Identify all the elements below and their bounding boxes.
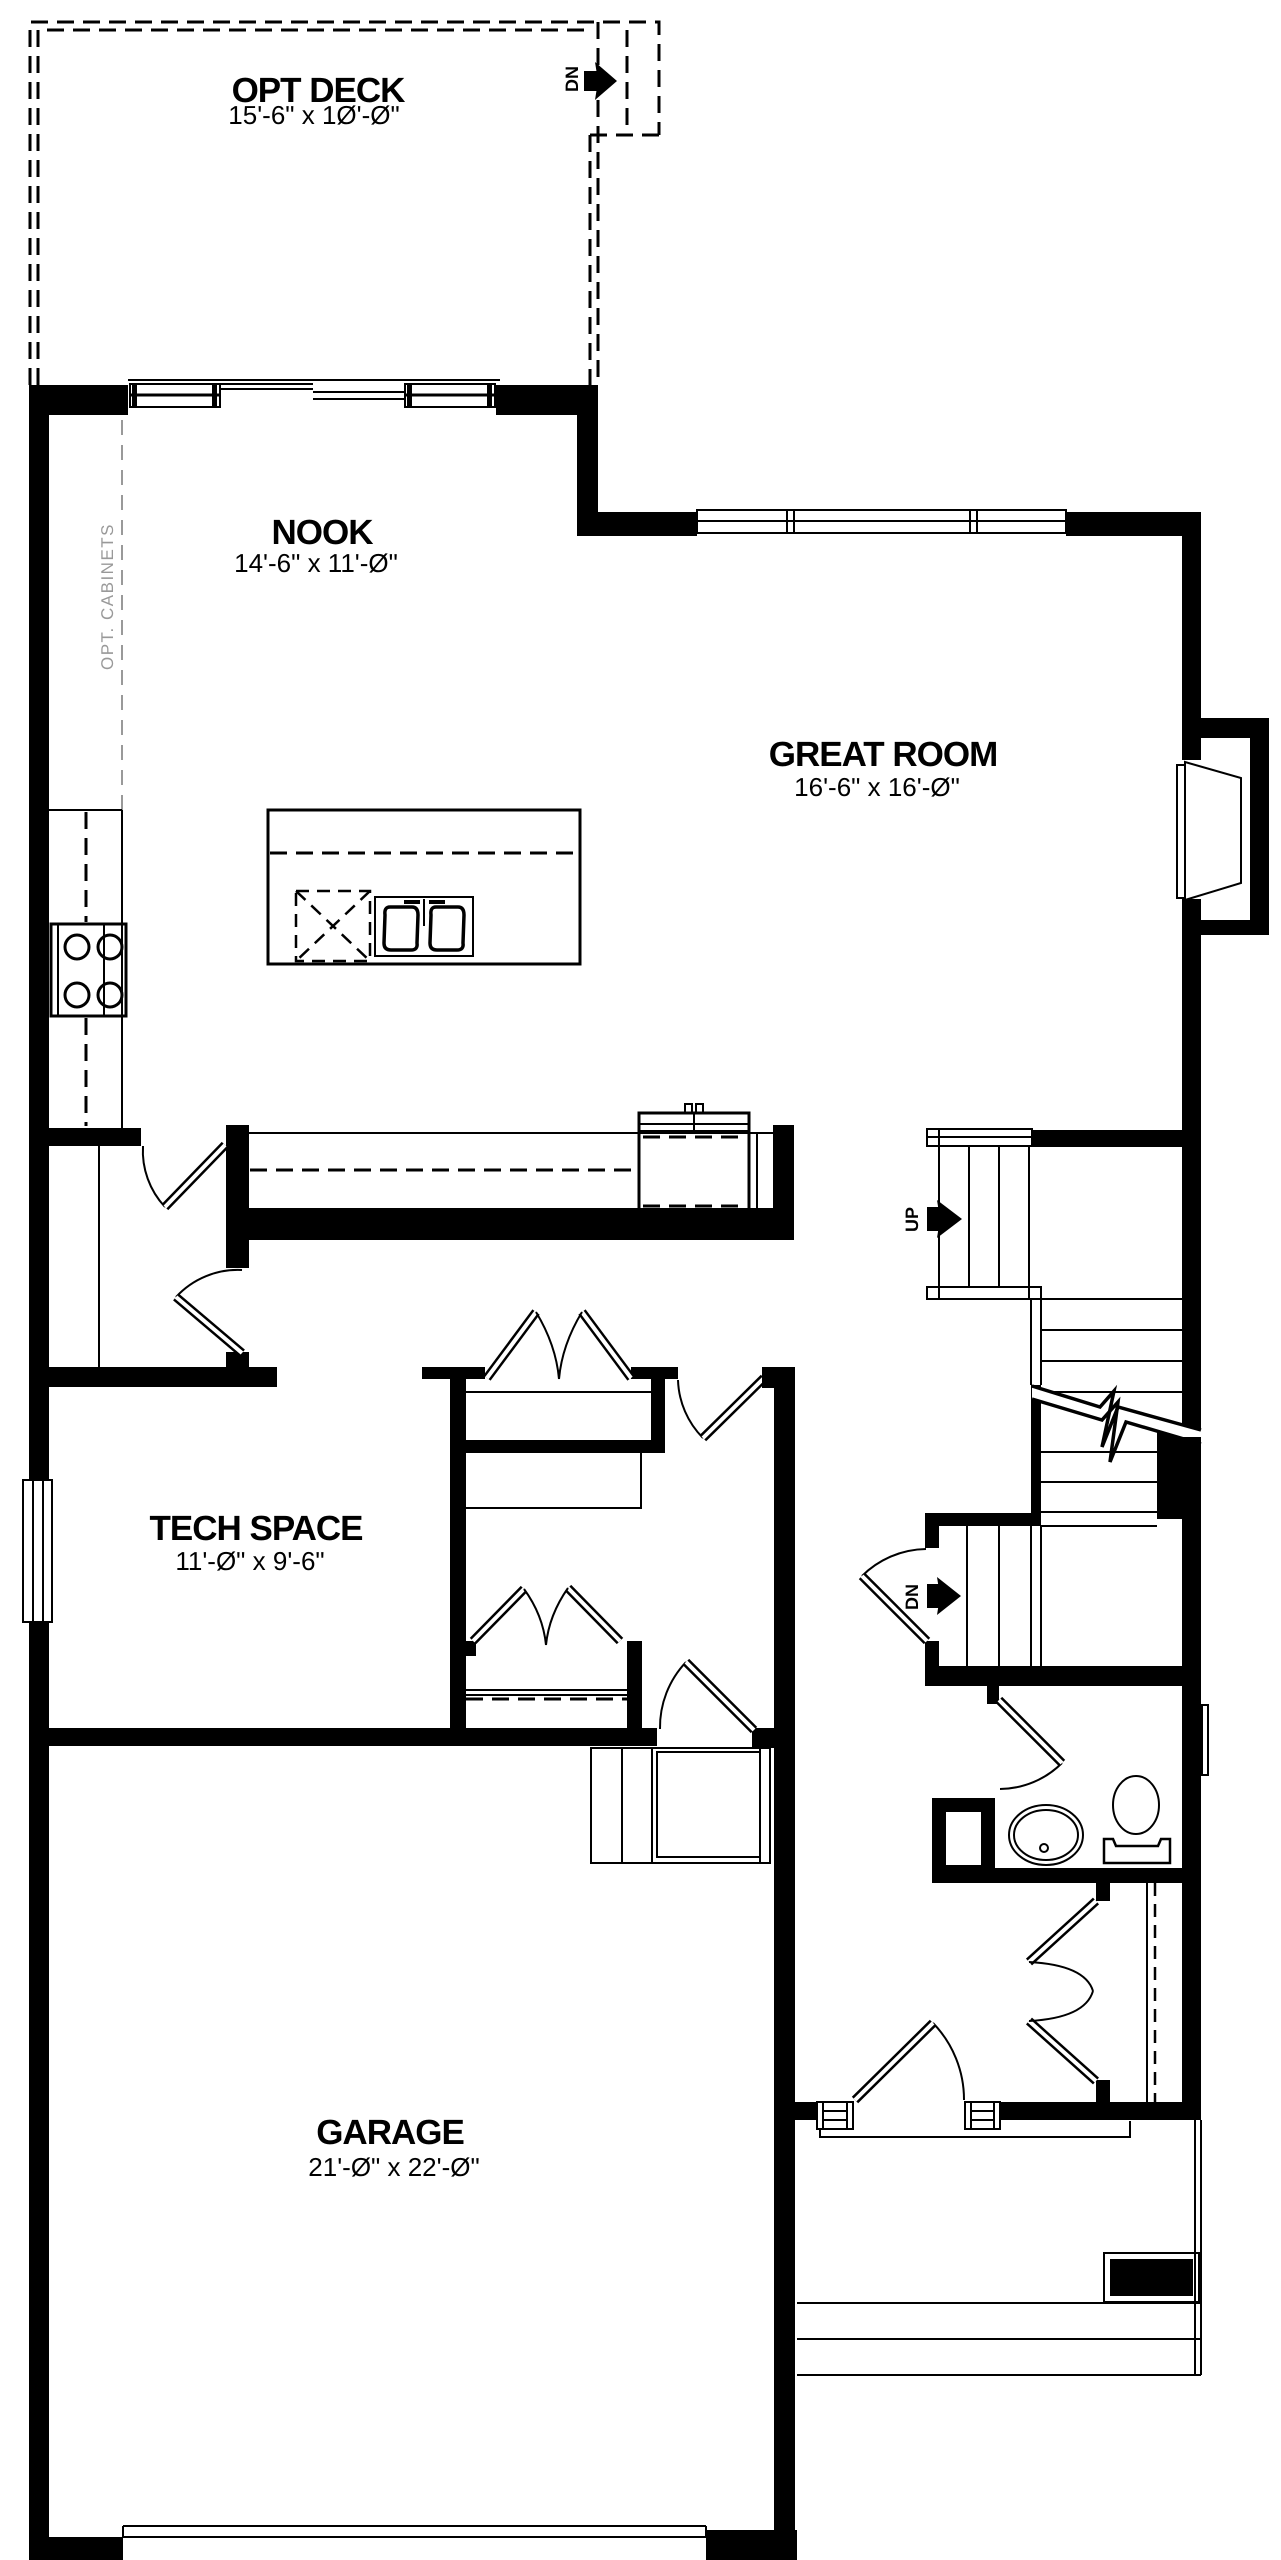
svg-text:DN: DN xyxy=(562,66,582,92)
svg-text:GARAGE: GARAGE xyxy=(316,2113,464,2152)
svg-text:14'-6" x 11'-Ø": 14'-6" x 11'-Ø" xyxy=(234,548,398,578)
svg-text:21'-Ø" x 22'-Ø": 21'-Ø" x 22'-Ø" xyxy=(308,2152,479,2182)
svg-text:OPT. CABINETS: OPT. CABINETS xyxy=(98,523,117,670)
svg-text:16'-6" x 16'-Ø": 16'-6" x 16'-Ø" xyxy=(794,772,960,802)
svg-text:15'-6" x 1Ø'-Ø": 15'-6" x 1Ø'-Ø" xyxy=(228,100,399,130)
svg-text:UP: UP xyxy=(902,1207,922,1232)
svg-text:DN: DN xyxy=(902,1584,922,1610)
svg-text:NOOK: NOOK xyxy=(272,513,374,552)
svg-text:GREAT ROOM: GREAT ROOM xyxy=(769,735,998,774)
svg-text:11'-Ø" x 9'-6": 11'-Ø" x 9'-6" xyxy=(175,1546,324,1576)
svg-text:TECH SPACE: TECH SPACE xyxy=(150,1509,363,1548)
